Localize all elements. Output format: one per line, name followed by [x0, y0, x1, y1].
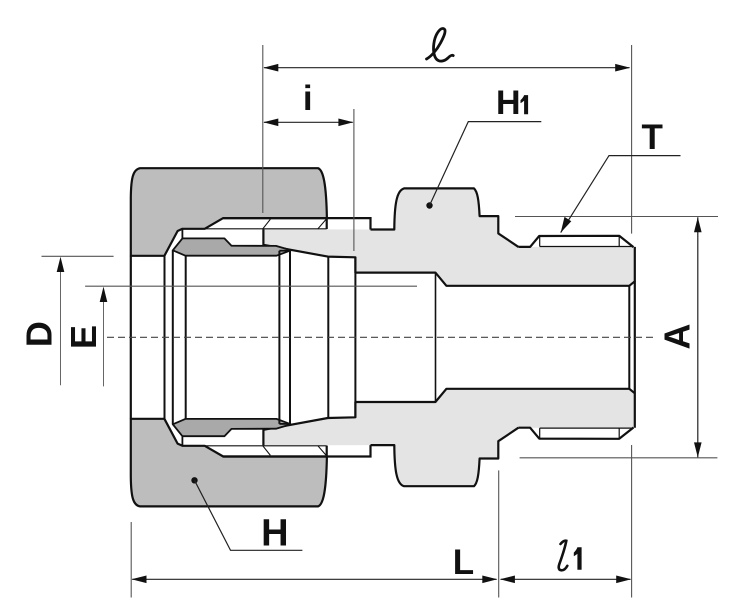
- svg-text:H: H: [261, 513, 288, 555]
- svg-text:L: L: [453, 543, 474, 582]
- svg-text:E: E: [63, 325, 104, 349]
- svg-text:A: A: [657, 324, 698, 350]
- svg-text:D: D: [19, 321, 60, 347]
- svg-text:T: T: [642, 118, 663, 157]
- svg-text:i: i: [303, 79, 313, 118]
- svg-text:H: H: [496, 84, 521, 122]
